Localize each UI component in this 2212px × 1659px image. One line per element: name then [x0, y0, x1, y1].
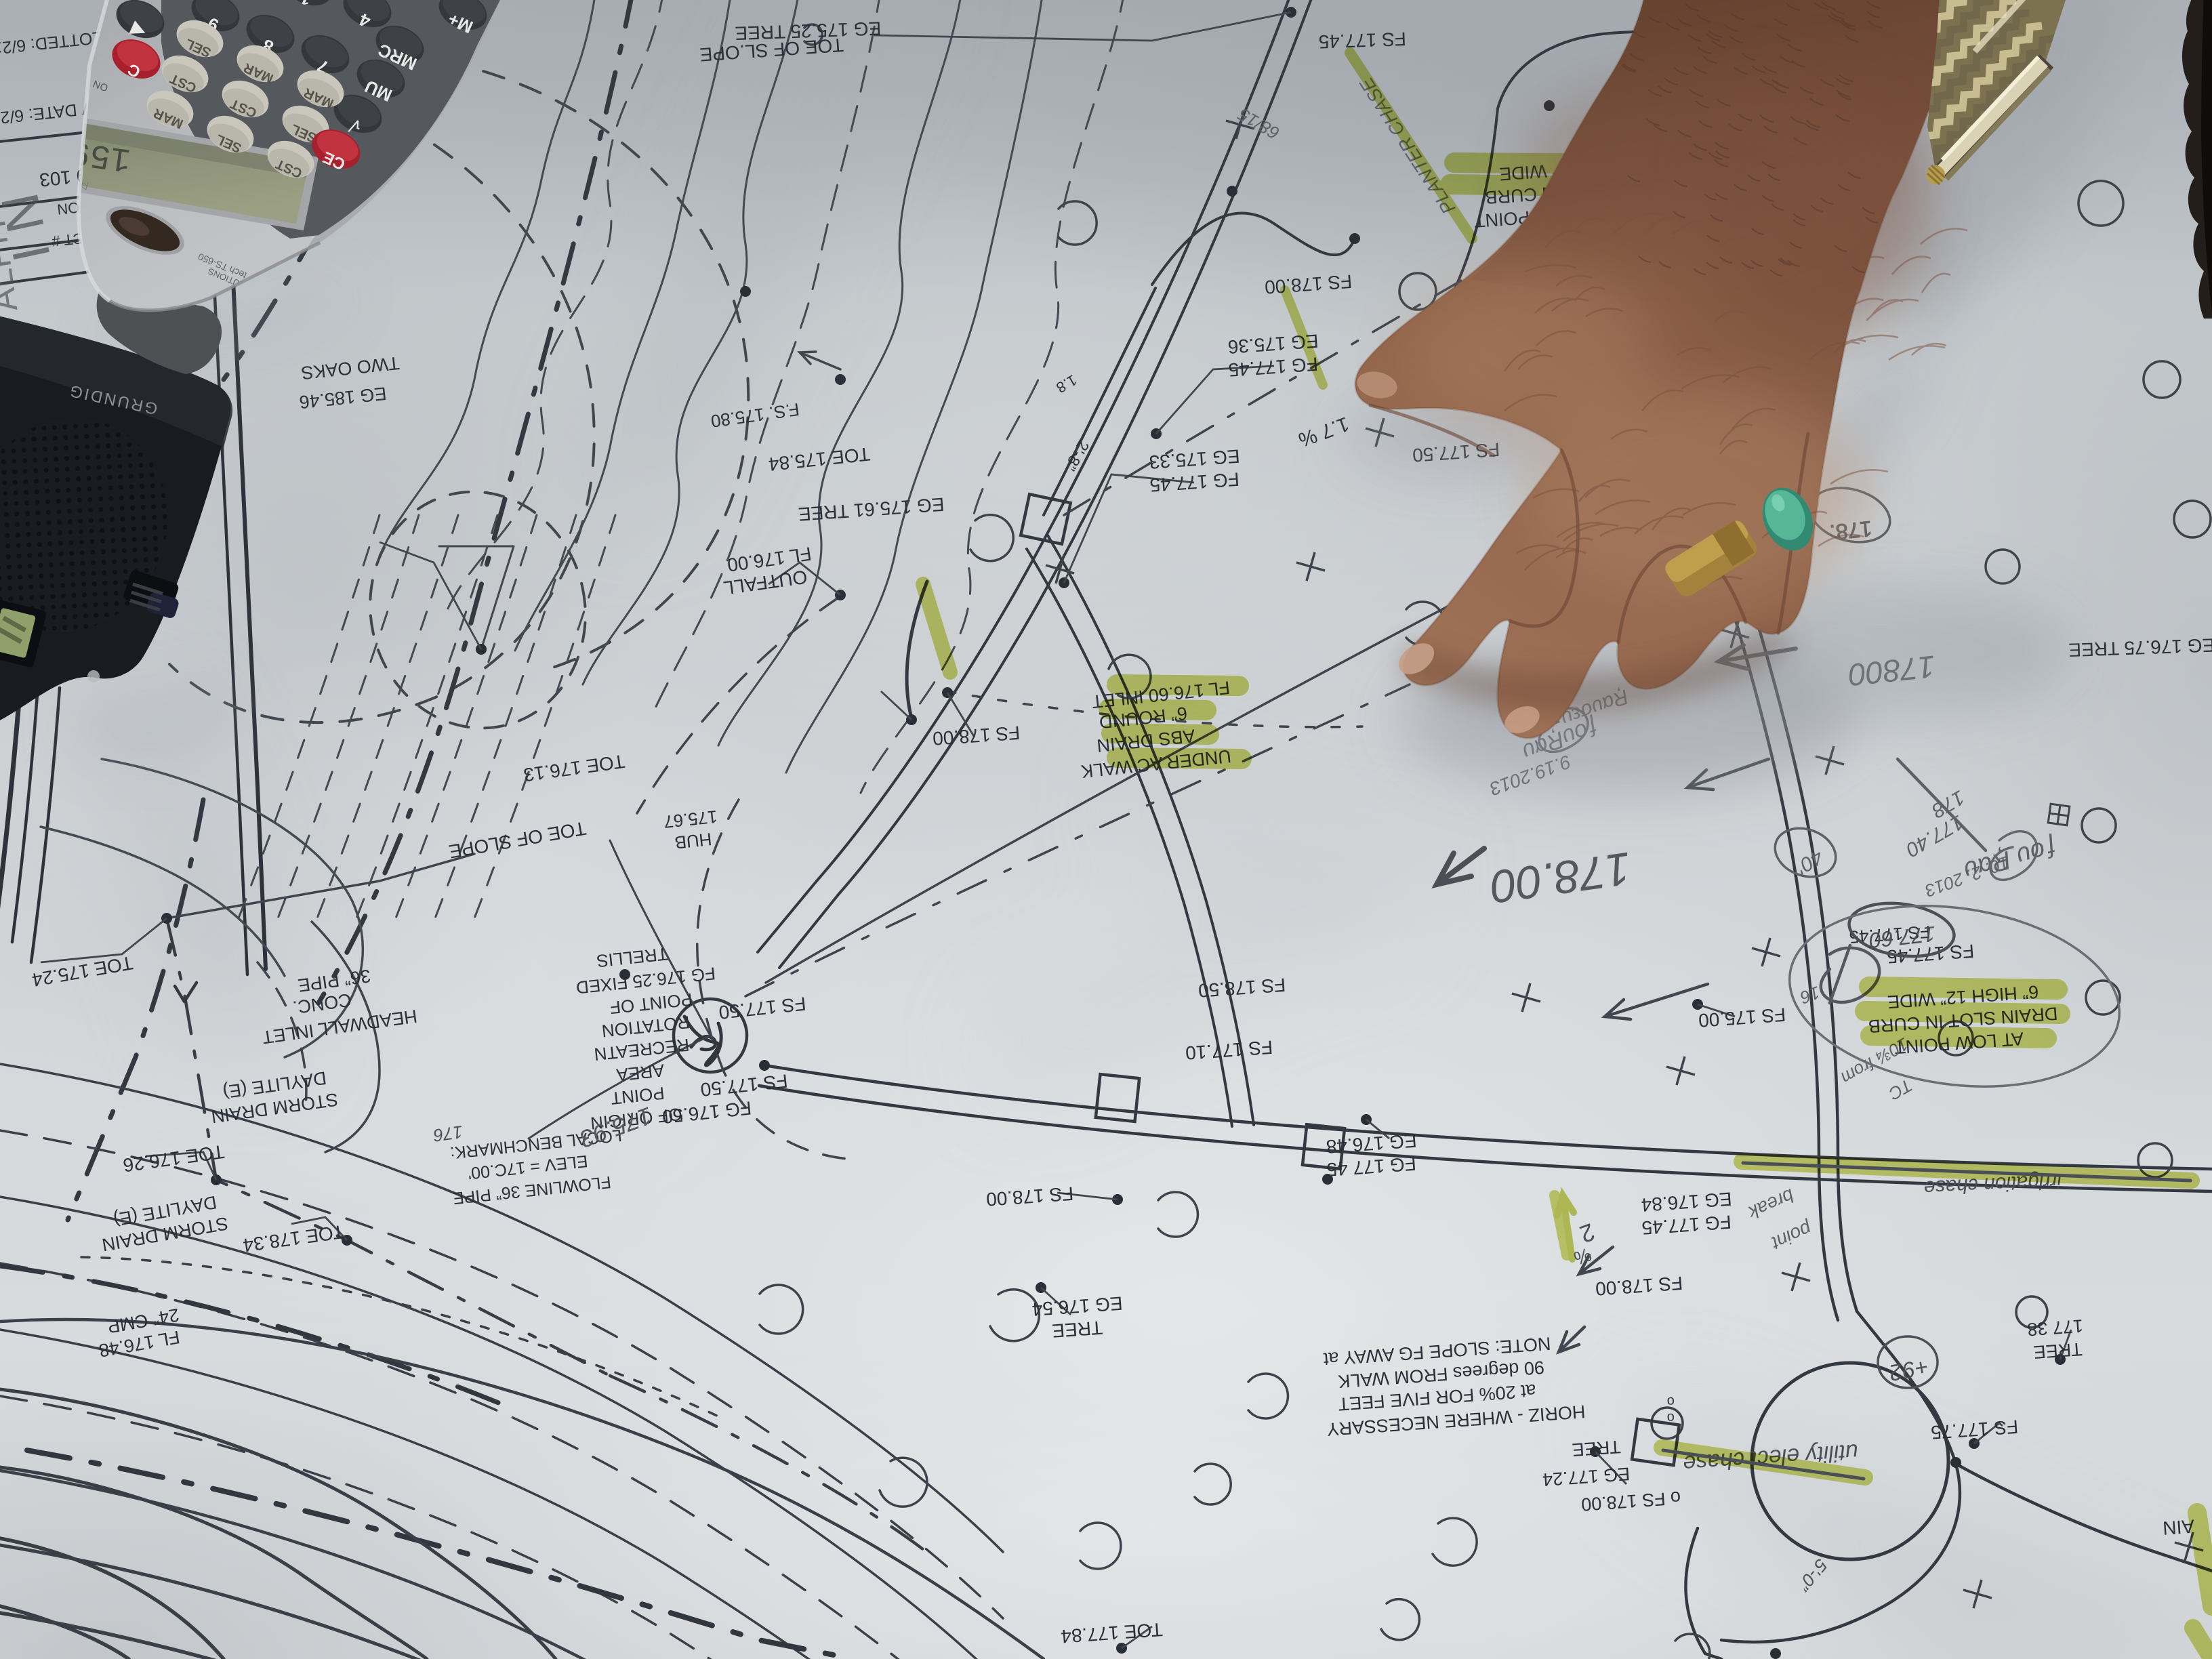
- svg-text:o: o: [1666, 1394, 1675, 1410]
- svg-text:TREE: TREE: [2033, 1339, 2083, 1363]
- svg-text:FS 177.45: FS 177.45: [1318, 28, 1406, 52]
- svg-text:o: o: [1666, 1410, 1675, 1426]
- svg-text:176: 176: [432, 1122, 464, 1146]
- svg-text:TREE: TREE: [1051, 1317, 1103, 1341]
- svg-text:177 38: 177 38: [2026, 1315, 2083, 1340]
- svg-text:HUB: HUB: [674, 829, 713, 853]
- svg-text:TREE: TREE: [1572, 1437, 1622, 1460]
